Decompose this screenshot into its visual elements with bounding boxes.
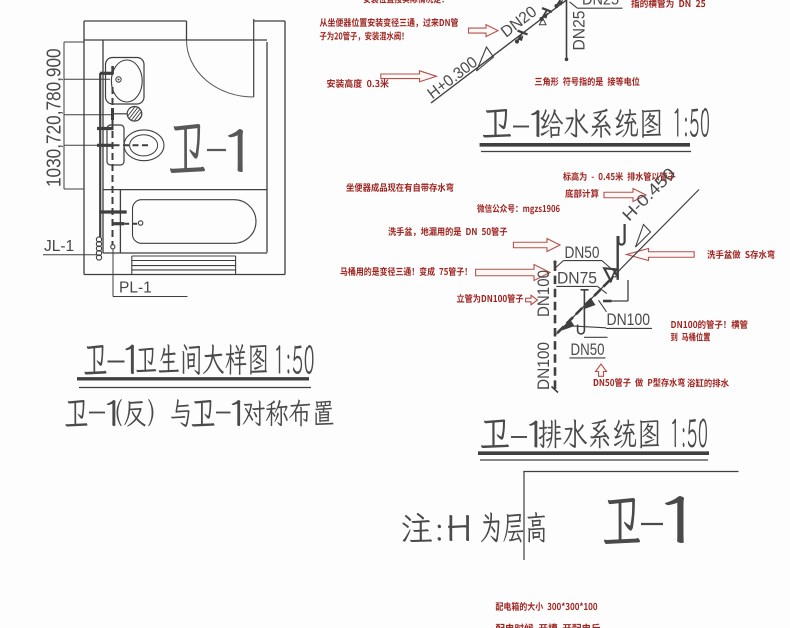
svg-text:DN25: DN25 xyxy=(582,0,619,9)
svg-text:DN100: DN100 xyxy=(535,342,553,390)
svg-text:1030,720,780,900: 1030,720,780,900 xyxy=(42,48,65,187)
svg-text:DN100: DN100 xyxy=(607,311,651,329)
svg-text:DN25: DN25 xyxy=(571,11,589,51)
svg-text:JL-1: JL-1 xyxy=(44,238,74,255)
svg-text:DN75: DN75 xyxy=(557,270,597,288)
svg-text:DN50: DN50 xyxy=(565,244,600,262)
svg-text:DN100: DN100 xyxy=(535,270,553,317)
svg-text:PL-1: PL-1 xyxy=(119,280,152,297)
svg-text:DN50: DN50 xyxy=(571,341,605,359)
